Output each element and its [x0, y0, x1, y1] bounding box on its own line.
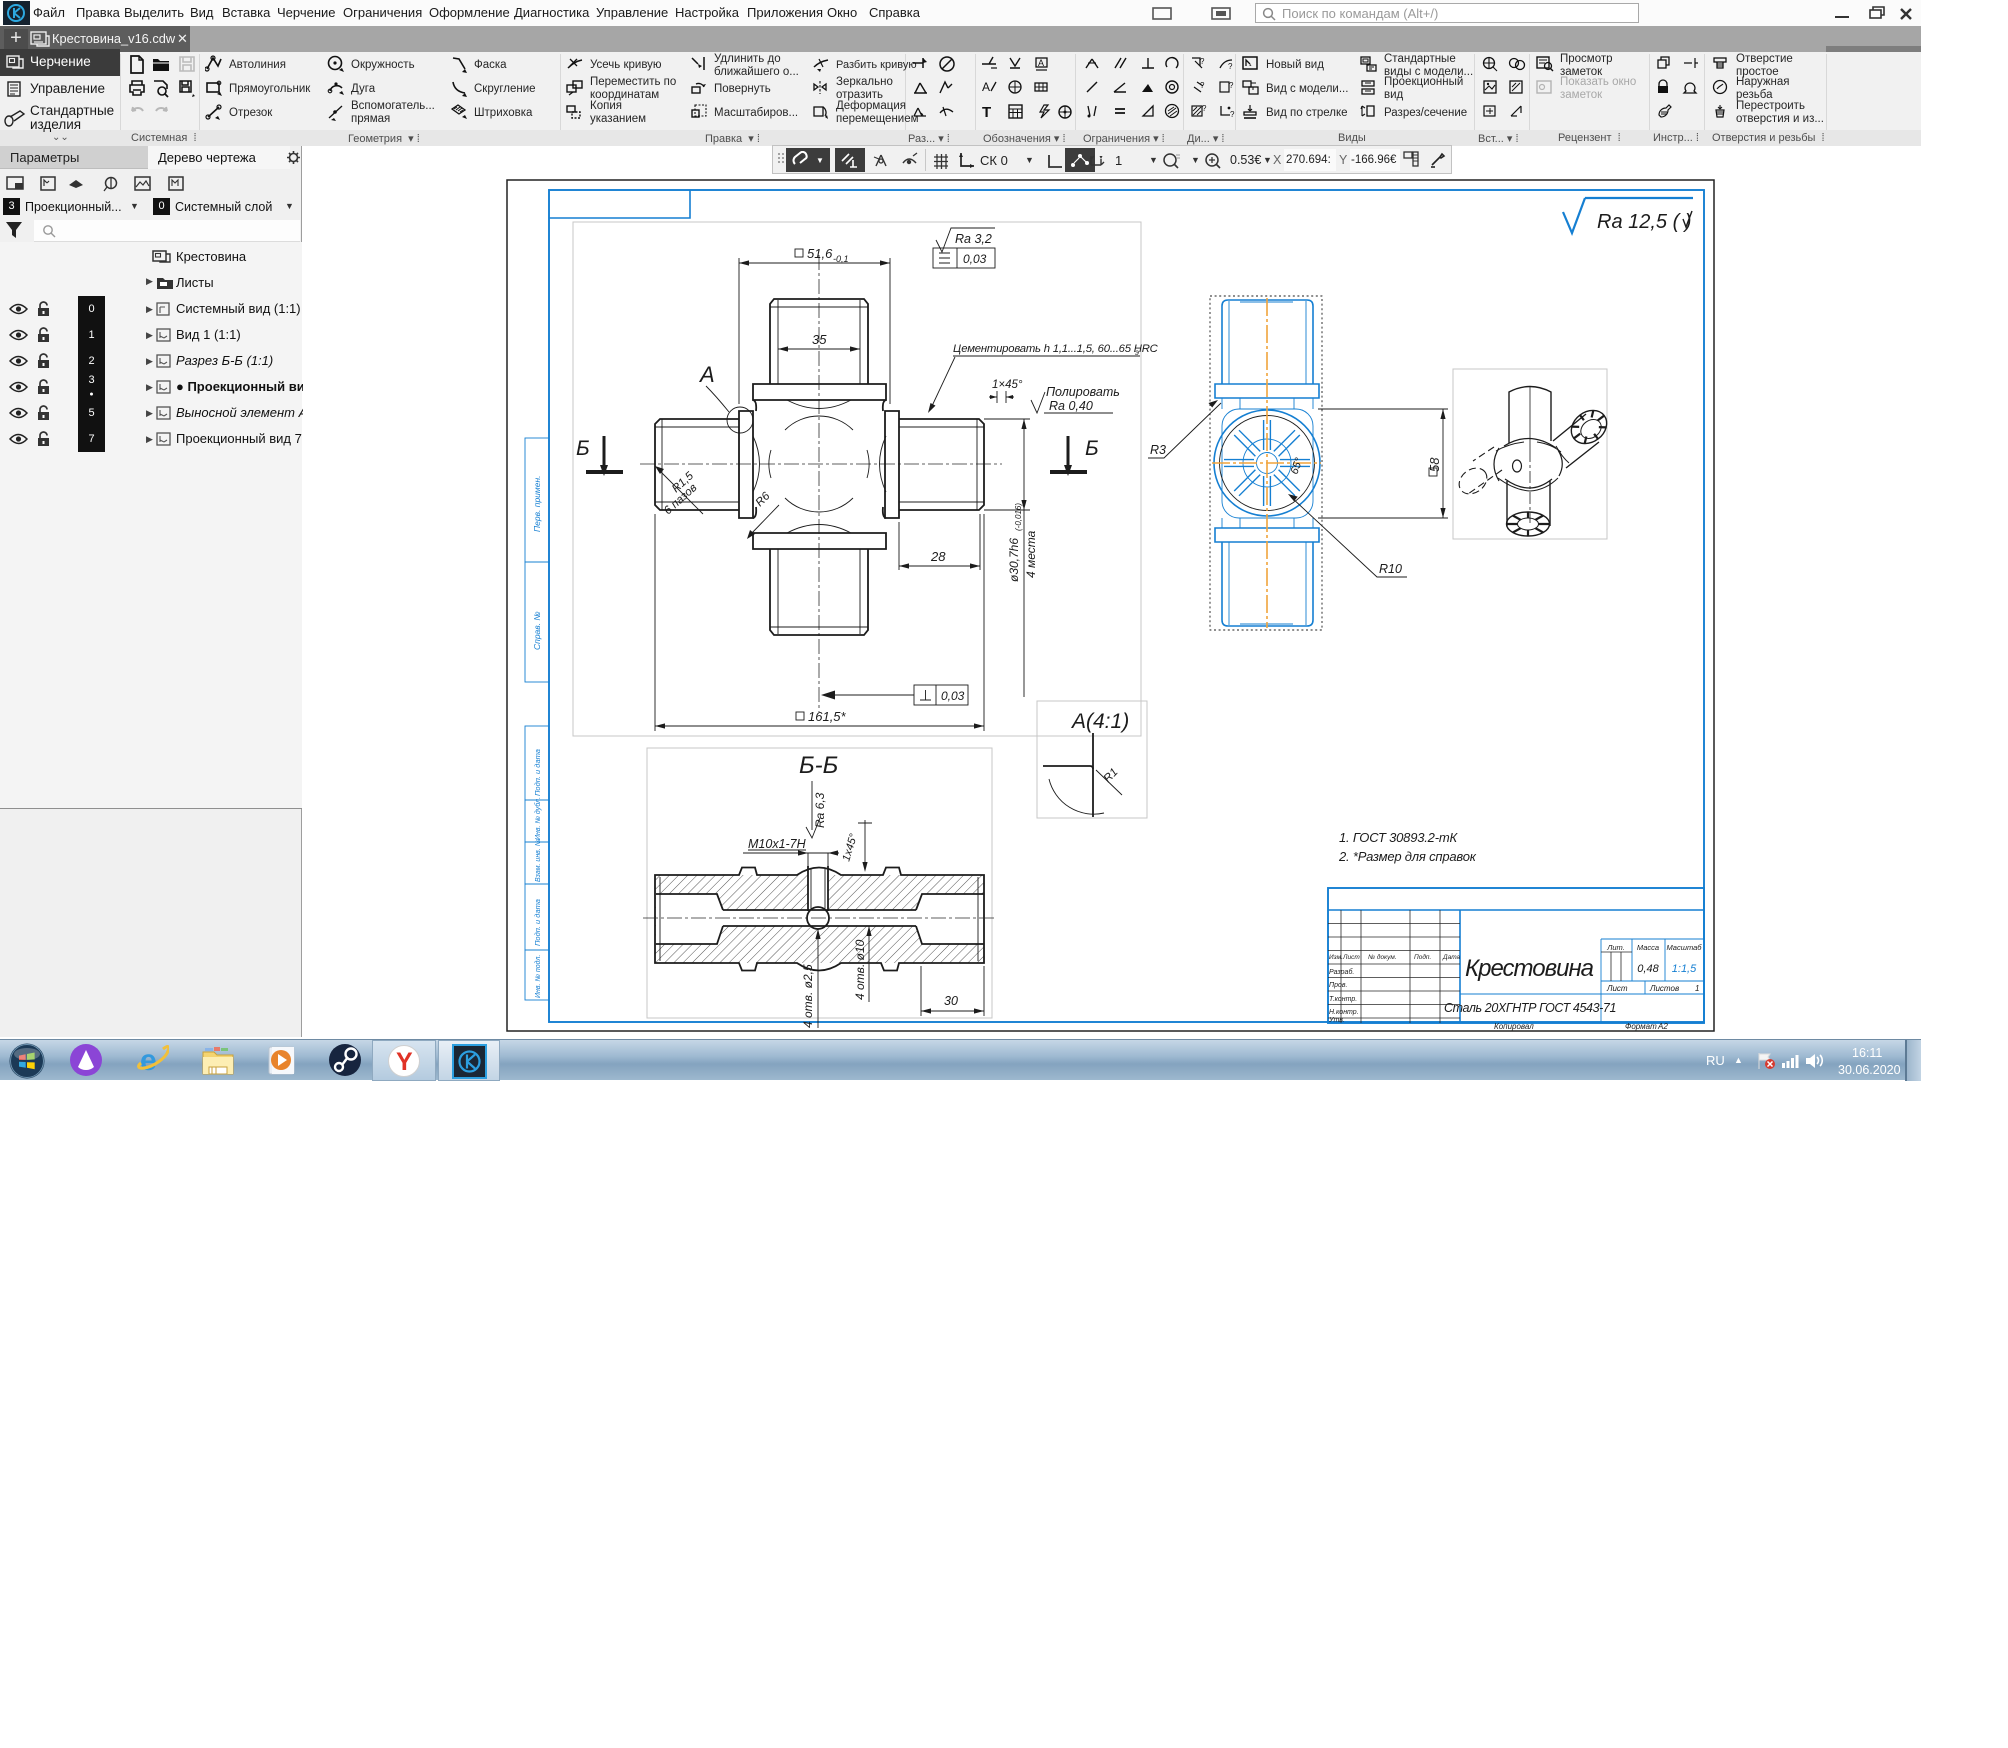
svg-text:4 места: 4 места [1024, 530, 1038, 578]
svg-text:Ra 0,40: Ra 0,40 [1049, 399, 1093, 413]
svg-text:Пров.: Пров. [1329, 982, 1348, 989]
svg-text:?: ? [1228, 62, 1233, 71]
svg-text:M10х1-7Н: M10х1-7Н [748, 837, 807, 851]
svg-text:Сталь 20ХГНТР ГОСТ 4543-71: Сталь 20ХГНТР ГОСТ 4543-71 [1444, 1001, 1616, 1015]
svg-text:0,03: 0,03 [941, 689, 965, 703]
svg-text:А2: А2 [1657, 1022, 1668, 1031]
svg-text:161,5*: 161,5* [808, 709, 847, 724]
svg-text:Н.контр.: Н.контр. [1329, 1009, 1359, 1016]
svg-text:Б: Б [1085, 437, 1099, 460]
svg-text:Лит.: Лит. [1606, 943, 1625, 952]
svg-text:Взам. инв. №: Взам. инв. № [535, 838, 542, 882]
svg-text:Y: Y [396, 1048, 413, 1076]
svg-text:Листов: Листов [1649, 984, 1679, 993]
svg-text:?: ? [1200, 81, 1205, 90]
svg-text:4 отв. ø2,5: 4 отв. ø2,5 [801, 964, 815, 1028]
svg-text:Подп.: Подп. [1414, 953, 1431, 961]
svg-text:(-0,016): (-0,016) [1014, 503, 1023, 531]
svg-text:Б-Б: Б-Б [799, 752, 838, 779]
svg-text:0,03: 0,03 [963, 252, 987, 266]
svg-text:R3: R3 [1150, 443, 1166, 457]
svg-text:?: ? [1202, 104, 1207, 113]
svg-text:Цементировать h 1,1...1,5, 6: Цементировать h 1,1...1,5, 60...65 HRC [953, 343, 1159, 355]
svg-text:Т.контр.: Т.контр. [1329, 996, 1357, 1003]
svg-text:30: 30 [944, 994, 958, 1008]
svg-text:Лист: Лист [1342, 954, 1360, 961]
svg-text:Масштаб: Масштаб [1666, 943, 1702, 952]
svg-text:Подп. и дата: Подп. и дата [533, 749, 542, 796]
svg-text:№ докум.: № докум. [1368, 953, 1397, 961]
svg-text:Б: Б [576, 437, 590, 460]
svg-text:1:1,5: 1:1,5 [1672, 963, 1697, 975]
svg-text:Дата: Дата [1442, 954, 1461, 961]
svg-text:ø30,7h6: ø30,7h6 [1007, 538, 1021, 582]
svg-text:Ra 3,2: Ra 3,2 [955, 232, 992, 246]
svg-text:35: 35 [812, 332, 827, 347]
svg-text:Инв. № подл.: Инв. № подл. [534, 955, 542, 998]
svg-text:T: T [982, 104, 991, 121]
svg-text:4 отв. ø10: 4 отв. ø10 [853, 939, 867, 1000]
svg-text:А: А [982, 80, 990, 94]
svg-text:?: ? [1230, 110, 1235, 119]
svg-text:Ra 6,3: Ra 6,3 [813, 792, 827, 828]
svg-text:2. *Размер для справок: 2. *Размер для справок [1338, 849, 1477, 864]
svg-text:-0,1: -0,1 [833, 254, 849, 264]
svg-text:Изм.: Изм. [1329, 954, 1343, 961]
svg-text:?: ? [1229, 81, 1234, 90]
svg-text:Масса: Масса [1637, 943, 1659, 952]
svg-text:Справ. №: Справ. № [532, 611, 542, 650]
svg-text:e: e [140, 1044, 157, 1077]
svg-text:1. ГОСТ 30893.2-тК: 1. ГОСТ 30893.2-тК [1339, 830, 1458, 845]
svg-text:?: ? [1200, 57, 1205, 66]
svg-text:А: А [1038, 58, 1044, 68]
svg-text:Крестовина: Крестовина [1465, 955, 1594, 982]
svg-text:Копировал: Копировал [1494, 1022, 1534, 1031]
svg-text:51,6: 51,6 [807, 246, 833, 261]
svg-text:А(4:1): А(4:1) [1070, 710, 1129, 733]
svg-text:Перв. примен.: Перв. примен. [532, 476, 542, 533]
svg-text:Полировать: Полировать [1046, 385, 1120, 399]
svg-text:28: 28 [930, 549, 946, 564]
svg-text:1: 1 [1695, 984, 1699, 993]
svg-text:58: 58 [1427, 457, 1442, 472]
svg-text:1×45°: 1×45° [992, 379, 1023, 391]
svg-text:Подп. и дата: Подп. и дата [533, 899, 542, 946]
svg-text:Формат: Формат [1625, 1022, 1657, 1031]
svg-text:Разраб.: Разраб. [1329, 968, 1354, 976]
svg-text:Лист: Лист [1606, 984, 1628, 993]
svg-text:Ra 12,5 ( ): Ra 12,5 ( ) [1597, 211, 1691, 233]
svg-text:Утв.: Утв. [1328, 1017, 1345, 1024]
svg-text:R10: R10 [1379, 562, 1402, 576]
svg-text:Инв. № дубл.: Инв. № дубл. [534, 797, 542, 840]
svg-text:А: А [698, 362, 715, 387]
svg-text:0,48: 0,48 [1637, 963, 1659, 975]
